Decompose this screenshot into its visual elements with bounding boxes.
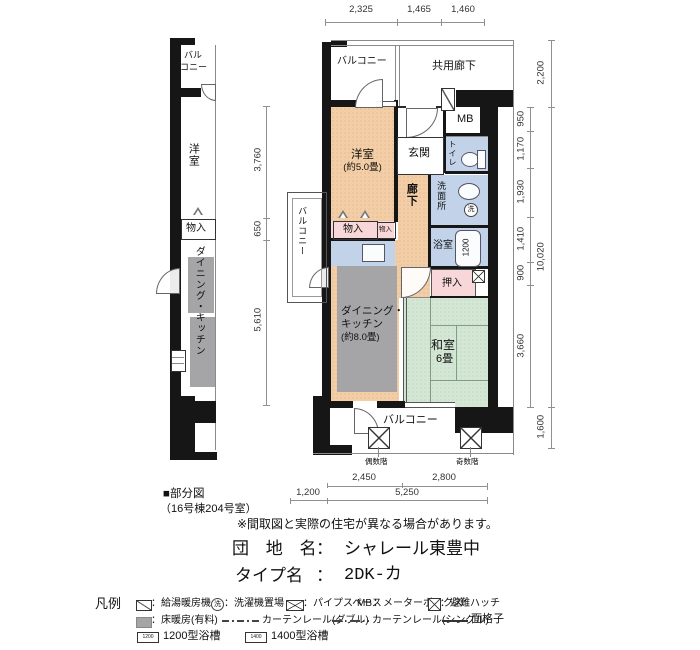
dim-tick	[397, 19, 398, 26]
dim-top-1: 1,465	[397, 5, 441, 15]
dim-tick	[527, 217, 534, 218]
room-label-dk2: キッチン	[341, 319, 383, 331]
dim-tick	[263, 240, 270, 241]
entry-door-arc	[406, 108, 438, 138]
disclaimer-text: ※間取図と実際の住宅が異なる場合があります。	[237, 518, 498, 531]
dim-line	[290, 500, 487, 501]
sliding-door-track	[406, 298, 407, 407]
dim-right-b-1: 10,020	[536, 235, 546, 279]
cut-edge-line	[215, 45, 216, 450]
window	[405, 402, 455, 408]
legend-grille: 面格子	[471, 613, 504, 625]
wall-segment	[331, 401, 353, 408]
partial-caption-room: （16号棟204号室）	[160, 503, 257, 515]
balcony-divider	[395, 45, 396, 107]
laundry-legend-icon: 洗	[211, 598, 224, 611]
room-label-genkan: 玄関	[408, 147, 430, 159]
wall-segment	[445, 171, 488, 174]
room-label-youshitsu-size: (約5.0畳)	[331, 163, 394, 174]
legend-bathtub-1200: 1200型浴槽	[163, 630, 220, 642]
dim-tick	[484, 19, 485, 26]
room-label-balcony-top: バルコニー	[337, 56, 387, 67]
dim-left-2: 5,610	[253, 300, 263, 340]
room-label-dk3: (約8.0畳)	[341, 333, 380, 344]
dim-top-0: 2,325	[338, 5, 384, 15]
dim-tick	[527, 168, 534, 169]
legend-laundry: ：洗濯機置場	[224, 598, 284, 609]
laundry-space-icon: 洗	[464, 203, 478, 217]
wall-segment	[181, 88, 201, 97]
legend-floor-heating: ：床暖房(有料)	[151, 615, 218, 626]
legend-water-heater: ：給湯暖房機	[151, 598, 211, 609]
curtain-rail-double-icon	[222, 620, 259, 622]
label-common-corridor: 共用廊下	[432, 60, 476, 72]
dim-tick	[487, 483, 488, 490]
room-label-youshitsu: 洋室	[331, 149, 394, 162]
room-label-washitsu: 和室	[431, 339, 455, 352]
room-label-oshiire: 押入	[442, 278, 462, 289]
dim-top-2: 1,460	[441, 5, 485, 15]
dim-tick	[487, 497, 488, 504]
grille-icon	[442, 620, 468, 622]
legend-bathtub-1400: 1400型浴槽	[271, 630, 328, 642]
wall-segment	[181, 38, 195, 45]
dim-tick	[527, 407, 534, 408]
door-arc	[201, 84, 216, 101]
wall-segment	[313, 396, 330, 446]
danchi-name-colon: ：	[316, 539, 333, 558]
dim-right-b-2: 1,600	[536, 407, 546, 447]
dim-tick	[263, 405, 270, 406]
pipe-space-icon	[472, 270, 485, 283]
room-label-senmenjo: 洗面所	[436, 181, 446, 211]
wall-segment	[194, 401, 216, 423]
dim-line	[325, 22, 484, 23]
bathtub-1400-legend-icon: 1400	[245, 632, 267, 643]
balcony-outer-edge	[313, 453, 514, 454]
dim-right-a-5: 3,660	[516, 326, 526, 366]
wall-segment	[170, 452, 217, 460]
room-label-youshitsu: 洋室	[187, 143, 199, 167]
room-label-balcony-bottom: バルコニー	[383, 414, 438, 426]
site-boundary	[513, 40, 514, 455]
leader-line	[470, 447, 471, 457]
dim-tick	[548, 448, 555, 449]
dim-line	[530, 107, 531, 407]
curtain-rail-single-icon	[332, 620, 369, 622]
room-label-yokushitsu: 浴室	[433, 240, 453, 251]
escape-hatch-icon	[460, 427, 482, 449]
dim-right-a-2: 1,930	[516, 172, 526, 212]
wall-segment	[428, 171, 431, 268]
wall-segment	[170, 396, 195, 458]
closet-door-marker	[193, 207, 203, 215]
label-mb: MB	[457, 113, 474, 125]
dim-tick	[263, 218, 270, 219]
pipe-space-legend-icon	[286, 600, 304, 611]
window-line	[172, 357, 184, 358]
closet-door-marker	[360, 210, 370, 218]
dim-right-b-0: 2,200	[536, 53, 546, 93]
room-label-monoire: 物入	[186, 223, 206, 234]
room-label-side-balcony: バルコニー	[297, 206, 307, 256]
tatami-line	[430, 380, 488, 381]
danchi-name-label: 団 地 名	[232, 539, 322, 558]
dim-tick	[290, 497, 291, 504]
window-box	[171, 350, 186, 372]
wall-segment	[377, 401, 405, 408]
corridor-boundary	[331, 45, 513, 46]
label-hatch-odd: 奇数階	[456, 458, 479, 466]
dim-line	[551, 40, 552, 448]
dim-right-a-1: 1,170	[516, 129, 526, 169]
legend-escape-hatch: ：避難ハッチ	[440, 598, 500, 609]
legend-heading: 凡例	[95, 597, 121, 612]
dim-right-a-4: 900	[516, 253, 526, 293]
partial-caption: ■部分図	[163, 488, 204, 501]
dim-tick	[548, 107, 555, 108]
dim-tick	[527, 131, 534, 132]
entry-wall	[398, 106, 406, 108]
dim-tick	[263, 106, 270, 107]
escape-hatch-icon	[368, 427, 390, 449]
danchi-name-value: シャレール東豊中	[344, 539, 480, 558]
dim-bottom-b-1: 5,250	[385, 488, 429, 498]
wall-segment	[430, 296, 488, 298]
dim-bottom-a-0: 2,450	[341, 473, 387, 483]
type-name-label: タイプ名	[235, 566, 303, 585]
wall-segment	[330, 100, 356, 107]
dim-left-0: 3,760	[253, 140, 263, 180]
tatami-line	[430, 298, 431, 407]
water-heater-icon	[441, 88, 455, 111]
type-name-colon: ：	[316, 566, 333, 585]
dim-bottom-a-1: 2,800	[421, 473, 467, 483]
dim-tick	[527, 285, 534, 286]
room-label-balcony2: コニー	[180, 62, 207, 72]
dim-tick	[527, 107, 534, 108]
type-name-value: 2DK-カ	[344, 566, 402, 585]
room-label-roka: 廊下	[405, 183, 417, 207]
door-arc	[156, 268, 180, 294]
dim-line	[266, 106, 267, 405]
kitchen-sink	[362, 244, 385, 262]
wall-segment	[488, 107, 498, 408]
dim-tick	[325, 19, 326, 26]
bathtub-1200-legend-icon: 1200	[137, 632, 159, 643]
legend-mb-symbol: MB	[357, 598, 372, 609]
floor-heating-legend-icon	[136, 617, 152, 628]
window-line	[172, 363, 184, 364]
room-label-monoire: 物入	[343, 224, 363, 235]
corridor-boundary	[331, 40, 513, 41]
dim-tick	[327, 497, 328, 504]
dim-tick	[527, 262, 534, 263]
room-label-balcony: バル	[184, 50, 202, 60]
dim-tick	[548, 407, 555, 408]
dim-tick	[441, 19, 442, 26]
leader-line	[378, 447, 379, 457]
room-label-monoire2: 物入	[379, 226, 392, 233]
room-line	[446, 136, 488, 137]
closet-door-marker	[338, 210, 348, 218]
sink-icon	[458, 183, 480, 200]
water-heater-legend-icon	[136, 600, 152, 611]
tatami-line	[456, 325, 457, 380]
balcony-divider	[399, 45, 400, 107]
floorplan-sheet: バル コニー 洋室 物入 ダイニング・キッチン ■部分図 （16号棟204号室）	[0, 0, 700, 650]
tatami-line	[430, 325, 488, 326]
wall-segment	[430, 225, 488, 228]
label-hatch-even: 偶数階	[365, 458, 388, 466]
dim-left-1: 650	[253, 212, 263, 246]
wall-segment	[456, 90, 513, 107]
bathtub-size-label: 1200	[463, 227, 472, 267]
toilet-tank	[477, 150, 486, 169]
room-label-toilet: トイレ	[447, 140, 456, 167]
wall-segment	[170, 38, 181, 448]
door-arc	[355, 79, 383, 108]
dim-bottom-b-0: 1,200	[286, 488, 330, 498]
room-label-washitsu-size: 6畳	[436, 353, 453, 365]
dim-tick	[548, 40, 555, 41]
room-label-dk1: ダイニング・	[341, 306, 404, 318]
